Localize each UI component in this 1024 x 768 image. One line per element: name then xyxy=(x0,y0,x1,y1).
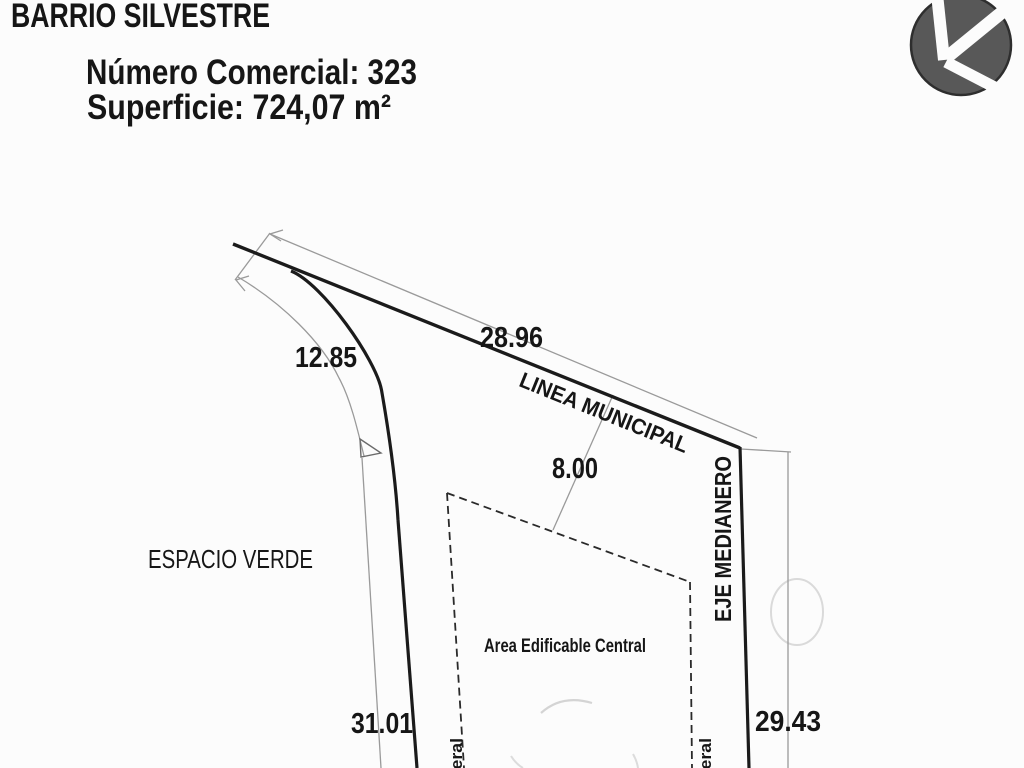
svg-text:ESPACIO VERDE: ESPACIO VERDE xyxy=(148,544,313,574)
svg-text:EJE MEDIANERO: EJE MEDIANERO xyxy=(710,456,736,622)
svg-text:BARRIO SILVESTRE: BARRIO SILVESTRE xyxy=(11,0,270,35)
svg-text:Superficie: 724,07 m²: Superficie: 724,07 m² xyxy=(87,88,391,127)
svg-text:28.96: 28.96 xyxy=(480,322,543,354)
svg-text:Retiro Lateral: Retiro Lateral xyxy=(696,738,715,768)
svg-text:12.85: 12.85 xyxy=(295,342,357,374)
svg-text:8.00: 8.00 xyxy=(552,453,598,485)
svg-text:Retiro Lateral: Retiro Lateral xyxy=(447,738,466,768)
svg-text:31.01: 31.01 xyxy=(351,708,413,740)
svg-text:Area Edificable Central: Area Edificable Central xyxy=(484,636,646,657)
svg-text:29.43: 29.43 xyxy=(755,706,821,738)
svg-text:Número Comercial: 323: Número Comercial: 323 xyxy=(86,53,417,92)
